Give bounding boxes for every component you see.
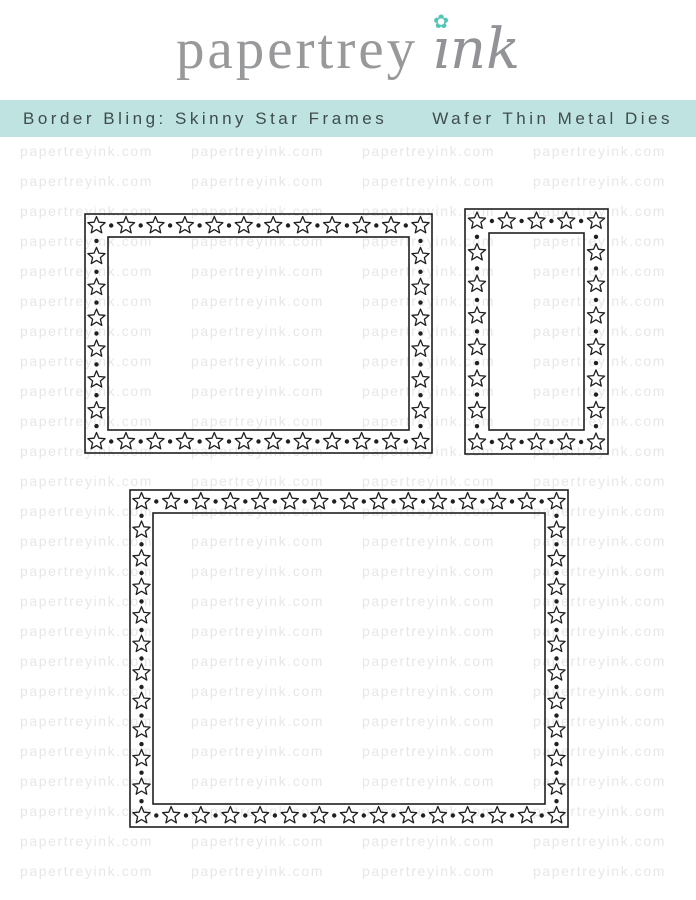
star-cutout bbox=[587, 307, 604, 323]
star-cutout bbox=[235, 217, 252, 233]
dot-cutout bbox=[519, 440, 523, 444]
dot-cutout bbox=[256, 223, 260, 227]
star-cutout bbox=[340, 807, 357, 823]
star-cutout bbox=[412, 371, 429, 387]
star-cutout bbox=[133, 607, 150, 623]
dot-cutout bbox=[421, 499, 425, 503]
dot-cutout bbox=[475, 329, 479, 333]
star-cutout bbox=[222, 493, 239, 509]
dot-cutout bbox=[391, 813, 395, 817]
dot-cutout bbox=[139, 713, 143, 717]
dot-cutout bbox=[554, 685, 558, 689]
dot-cutout bbox=[94, 393, 98, 397]
star-cutout bbox=[265, 217, 282, 233]
dot-cutout bbox=[315, 223, 319, 227]
star-cutout bbox=[518, 493, 535, 509]
star-cutout bbox=[133, 635, 150, 651]
star-cutout bbox=[429, 493, 446, 509]
dot-cutout bbox=[480, 499, 484, 503]
dot-cutout bbox=[168, 439, 172, 443]
dot-cutout bbox=[315, 439, 319, 443]
dot-cutout bbox=[475, 424, 479, 428]
star-cutout bbox=[548, 493, 565, 509]
dot-cutout bbox=[184, 499, 188, 503]
star-cutout bbox=[468, 307, 485, 323]
star-cutout bbox=[468, 370, 485, 386]
dot-cutout bbox=[139, 628, 143, 632]
star-cutout bbox=[587, 212, 604, 228]
dot-cutout bbox=[510, 499, 514, 503]
dot-cutout bbox=[510, 813, 514, 817]
dot-cutout bbox=[594, 361, 598, 365]
star-cutout bbox=[548, 778, 565, 794]
star-cutout bbox=[206, 217, 223, 233]
dot-cutout bbox=[579, 440, 583, 444]
dot-cutout bbox=[139, 223, 143, 227]
dot-cutout bbox=[549, 440, 553, 444]
dot-cutout bbox=[418, 300, 422, 304]
dot-cutout bbox=[362, 499, 366, 503]
dot-cutout bbox=[475, 392, 479, 396]
star-cutout bbox=[192, 807, 209, 823]
star-cutout bbox=[252, 807, 269, 823]
dot-cutout bbox=[404, 439, 408, 443]
star-cutout bbox=[548, 721, 565, 737]
star-cutout bbox=[252, 493, 269, 509]
dot-cutout bbox=[273, 499, 277, 503]
dot-cutout bbox=[554, 514, 558, 518]
dot-cutout bbox=[213, 499, 217, 503]
dot-cutout bbox=[554, 656, 558, 660]
landscape-star-frame-die bbox=[85, 214, 432, 453]
star-cutout bbox=[311, 493, 328, 509]
dot-cutout bbox=[243, 813, 247, 817]
dot-cutout bbox=[139, 799, 143, 803]
dot-cutout bbox=[154, 813, 158, 817]
dot-cutout bbox=[549, 219, 553, 223]
star-cutout bbox=[412, 340, 429, 356]
star-cutout bbox=[412, 247, 429, 263]
dot-cutout bbox=[139, 599, 143, 603]
star-cutout bbox=[163, 493, 180, 509]
star-cutout bbox=[548, 692, 565, 708]
dot-cutout bbox=[374, 439, 378, 443]
star-cutout bbox=[133, 778, 150, 794]
dot-cutout bbox=[139, 656, 143, 660]
star-cutout bbox=[133, 521, 150, 537]
star-cutout bbox=[412, 402, 429, 418]
dot-cutout bbox=[273, 813, 277, 817]
dot-cutout bbox=[418, 239, 422, 243]
dot-cutout bbox=[480, 813, 484, 817]
star-cutout bbox=[88, 433, 105, 449]
star-cutout bbox=[192, 493, 209, 509]
star-cutout bbox=[468, 212, 485, 228]
dot-cutout bbox=[286, 223, 290, 227]
star-cutout bbox=[587, 370, 604, 386]
star-cutout bbox=[587, 401, 604, 417]
dot-cutout bbox=[227, 223, 231, 227]
star-cutout bbox=[528, 212, 545, 228]
star-cutout bbox=[353, 433, 370, 449]
dot-cutout bbox=[197, 439, 201, 443]
dot-cutout bbox=[451, 499, 455, 503]
star-cutout bbox=[222, 807, 239, 823]
large-square-star-frame-die bbox=[130, 490, 568, 827]
dot-cutout bbox=[94, 424, 98, 428]
dot-cutout bbox=[213, 813, 217, 817]
dot-cutout bbox=[579, 219, 583, 223]
star-cutout bbox=[147, 217, 164, 233]
dot-cutout bbox=[345, 439, 349, 443]
dot-cutout bbox=[554, 599, 558, 603]
dot-cutout bbox=[418, 270, 422, 274]
die-frames-canvas bbox=[0, 0, 696, 900]
star-cutout bbox=[548, 807, 565, 823]
dot-cutout bbox=[475, 298, 479, 302]
star-cutout bbox=[88, 402, 105, 418]
star-cutout bbox=[206, 433, 223, 449]
star-cutout bbox=[383, 433, 400, 449]
star-cutout bbox=[133, 721, 150, 737]
star-cutout bbox=[548, 521, 565, 537]
star-cutout bbox=[340, 493, 357, 509]
dot-cutout bbox=[490, 440, 494, 444]
star-cutout bbox=[548, 749, 565, 765]
star-cutout bbox=[400, 493, 417, 509]
dot-cutout bbox=[197, 223, 201, 227]
dot-cutout bbox=[94, 300, 98, 304]
star-cutout bbox=[412, 433, 429, 449]
dot-cutout bbox=[540, 499, 544, 503]
slim-vertical-star-frame-die bbox=[465, 209, 608, 454]
dot-cutout bbox=[519, 219, 523, 223]
star-cutout bbox=[528, 433, 545, 449]
star-cutout bbox=[518, 807, 535, 823]
star-cutout bbox=[88, 371, 105, 387]
star-cutout bbox=[548, 607, 565, 623]
star-cutout bbox=[147, 433, 164, 449]
star-cutout bbox=[370, 807, 387, 823]
star-cutout bbox=[324, 217, 341, 233]
star-cutout bbox=[281, 807, 298, 823]
star-cutout bbox=[133, 692, 150, 708]
star-cutout bbox=[88, 309, 105, 325]
star-cutout bbox=[133, 664, 150, 680]
star-cutout bbox=[489, 807, 506, 823]
star-cutout bbox=[412, 309, 429, 325]
star-cutout bbox=[88, 278, 105, 294]
dot-cutout bbox=[490, 219, 494, 223]
dot-cutout bbox=[451, 813, 455, 817]
dot-cutout bbox=[554, 771, 558, 775]
star-cutout bbox=[133, 807, 150, 823]
star-cutout bbox=[587, 275, 604, 291]
dot-cutout bbox=[362, 813, 366, 817]
dot-cutout bbox=[554, 628, 558, 632]
star-cutout bbox=[558, 433, 575, 449]
dot-cutout bbox=[421, 813, 425, 817]
dot-cutout bbox=[391, 499, 395, 503]
star-cutout bbox=[558, 212, 575, 228]
dot-cutout bbox=[332, 499, 336, 503]
star-cutout bbox=[587, 338, 604, 354]
star-cutout bbox=[88, 217, 105, 233]
star-cutout bbox=[324, 433, 341, 449]
star-cutout bbox=[176, 433, 193, 449]
dot-cutout bbox=[554, 713, 558, 717]
star-cutout bbox=[88, 247, 105, 263]
dot-cutout bbox=[594, 235, 598, 239]
dot-cutout bbox=[475, 235, 479, 239]
dot-cutout bbox=[302, 813, 306, 817]
dot-cutout bbox=[139, 439, 143, 443]
star-cutout bbox=[133, 493, 150, 509]
dot-cutout bbox=[109, 439, 113, 443]
star-cutout bbox=[117, 217, 134, 233]
dot-cutout bbox=[594, 392, 598, 396]
star-cutout bbox=[133, 550, 150, 566]
dot-cutout bbox=[594, 266, 598, 270]
dot-cutout bbox=[139, 742, 143, 746]
star-cutout bbox=[429, 807, 446, 823]
dot-cutout bbox=[404, 223, 408, 227]
star-cutout bbox=[281, 493, 298, 509]
dot-cutout bbox=[540, 813, 544, 817]
dot-cutout bbox=[109, 223, 113, 227]
star-cutout bbox=[548, 578, 565, 594]
dot-cutout bbox=[154, 499, 158, 503]
dot-cutout bbox=[554, 571, 558, 575]
star-cutout bbox=[468, 275, 485, 291]
star-cutout bbox=[459, 807, 476, 823]
dot-cutout bbox=[554, 542, 558, 546]
star-cutout bbox=[383, 217, 400, 233]
dot-cutout bbox=[418, 424, 422, 428]
dot-cutout bbox=[227, 439, 231, 443]
star-cutout bbox=[468, 433, 485, 449]
dot-cutout bbox=[139, 514, 143, 518]
dot-cutout bbox=[168, 223, 172, 227]
dot-cutout bbox=[139, 542, 143, 546]
dot-cutout bbox=[374, 223, 378, 227]
dot-cutout bbox=[302, 499, 306, 503]
star-cutout bbox=[88, 340, 105, 356]
star-cutout bbox=[163, 807, 180, 823]
star-cutout bbox=[587, 433, 604, 449]
dot-cutout bbox=[418, 331, 422, 335]
dot-cutout bbox=[94, 362, 98, 366]
star-cutout bbox=[294, 433, 311, 449]
star-cutout bbox=[133, 578, 150, 594]
star-cutout bbox=[370, 493, 387, 509]
dot-cutout bbox=[475, 361, 479, 365]
star-cutout bbox=[489, 493, 506, 509]
dot-cutout bbox=[554, 742, 558, 746]
dot-cutout bbox=[475, 266, 479, 270]
star-cutout bbox=[117, 433, 134, 449]
dot-cutout bbox=[139, 771, 143, 775]
star-cutout bbox=[294, 217, 311, 233]
star-cutout bbox=[412, 278, 429, 294]
star-cutout bbox=[235, 433, 252, 449]
dot-cutout bbox=[332, 813, 336, 817]
dot-cutout bbox=[554, 799, 558, 803]
star-cutout bbox=[498, 212, 515, 228]
star-cutout bbox=[468, 244, 485, 260]
star-cutout bbox=[265, 433, 282, 449]
star-cutout bbox=[133, 749, 150, 765]
star-cutout bbox=[400, 807, 417, 823]
dot-cutout bbox=[594, 298, 598, 302]
dot-cutout bbox=[594, 329, 598, 333]
star-cutout bbox=[311, 807, 328, 823]
dot-cutout bbox=[94, 270, 98, 274]
star-cutout bbox=[587, 244, 604, 260]
dot-cutout bbox=[94, 331, 98, 335]
dot-cutout bbox=[345, 223, 349, 227]
star-cutout bbox=[548, 635, 565, 651]
dot-cutout bbox=[418, 393, 422, 397]
star-cutout bbox=[459, 493, 476, 509]
star-cutout bbox=[548, 550, 565, 566]
dot-cutout bbox=[139, 571, 143, 575]
star-cutout bbox=[468, 338, 485, 354]
star-cutout bbox=[548, 664, 565, 680]
star-cutout bbox=[498, 433, 515, 449]
dot-cutout bbox=[139, 685, 143, 689]
dot-cutout bbox=[594, 424, 598, 428]
star-cutout bbox=[412, 217, 429, 233]
dot-cutout bbox=[286, 439, 290, 443]
dot-cutout bbox=[184, 813, 188, 817]
dot-cutout bbox=[94, 239, 98, 243]
star-cutout bbox=[353, 217, 370, 233]
dot-cutout bbox=[256, 439, 260, 443]
dot-cutout bbox=[418, 362, 422, 366]
star-cutout bbox=[468, 401, 485, 417]
star-cutout bbox=[176, 217, 193, 233]
dot-cutout bbox=[243, 499, 247, 503]
